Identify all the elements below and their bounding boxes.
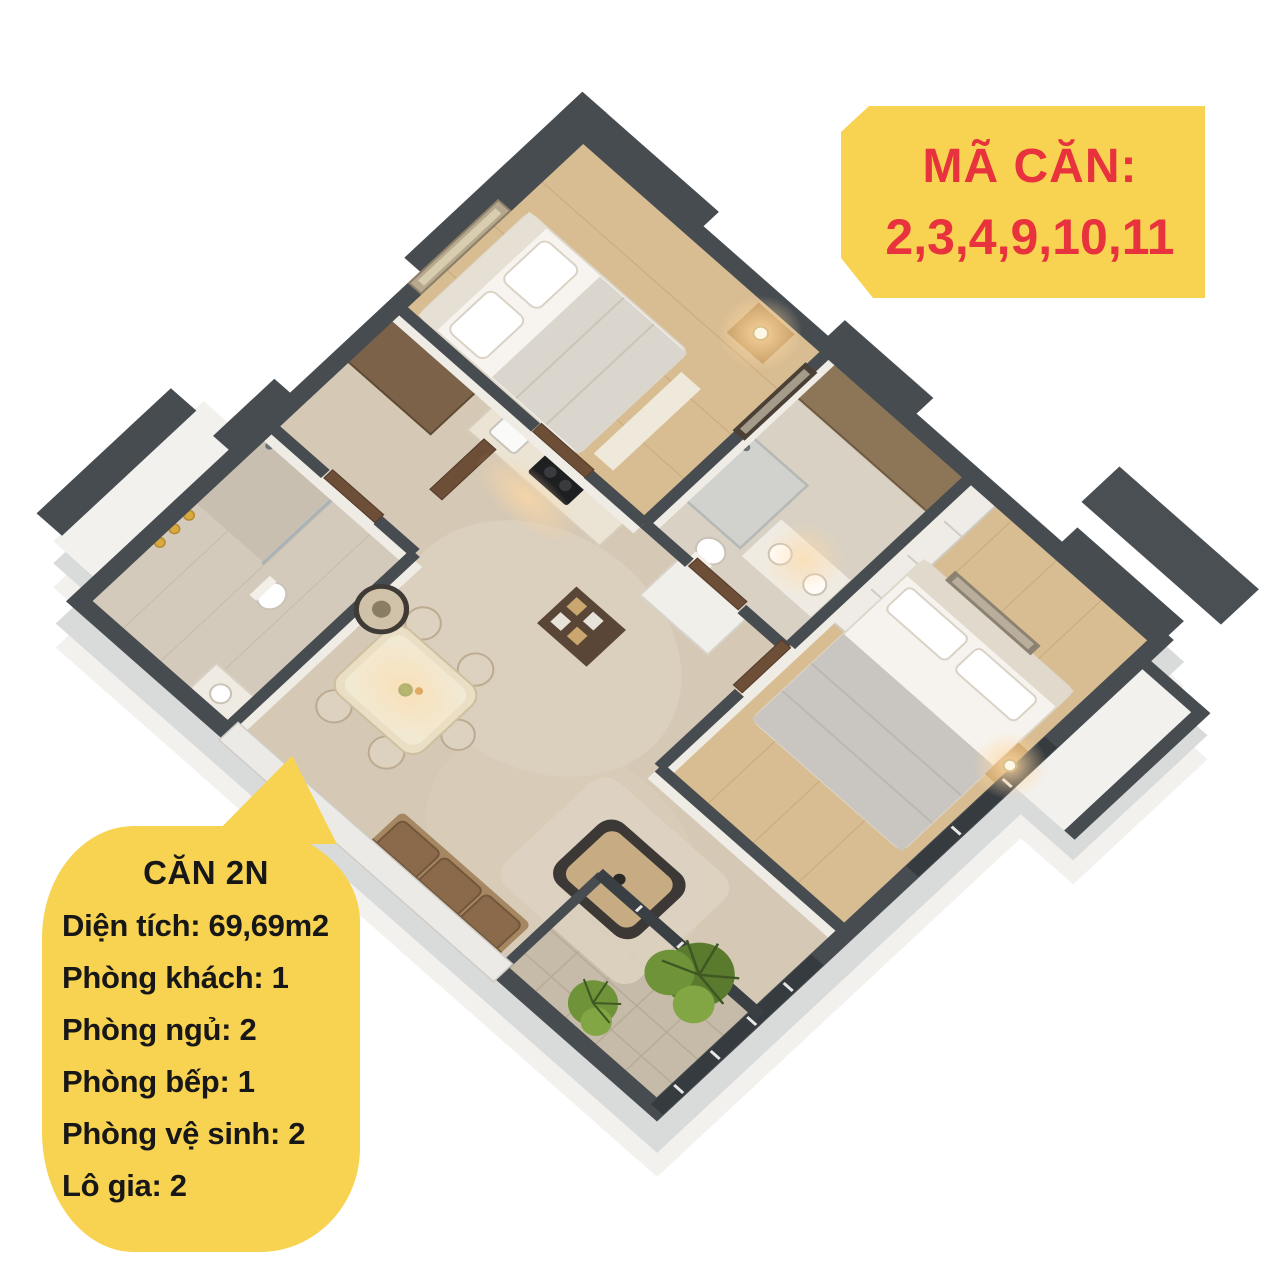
unit-code-label: MÃ CĂN: (923, 139, 1138, 194)
unit-info-living-rooms: Phòng khách: 1 (62, 952, 350, 1004)
unit-info-bedrooms: Phòng ngủ: 2 (62, 1004, 350, 1056)
unit-code-value: 2,3,4,9,10,11 (885, 208, 1174, 266)
unit-info-title: CĂN 2N (62, 854, 350, 892)
unit-info-loggias: Lô gia: 2 (62, 1160, 350, 1212)
unit-info-bathrooms: Phòng vệ sinh: 2 (62, 1108, 350, 1160)
unit-info-kitchens: Phòng bếp: 1 (62, 1056, 350, 1108)
unit-info-area: Diện tích: 69,69m2 (62, 900, 350, 952)
unit-info-bubble: CĂN 2N Diện tích: 69,69m2 Phòng khách: 1… (42, 826, 360, 1252)
unit-code-banner: MÃ CĂN: 2,3,4,9,10,11 (841, 106, 1205, 298)
